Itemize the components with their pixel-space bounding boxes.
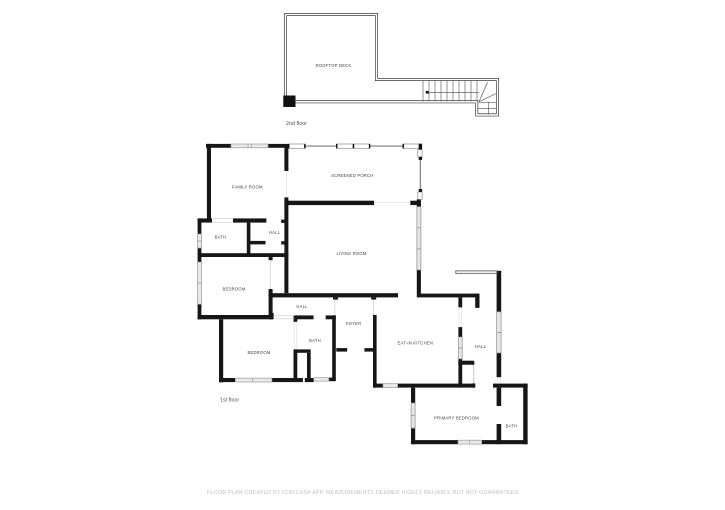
svg-text:HALL: HALL <box>475 344 487 349</box>
svg-text:BATH: BATH <box>309 338 321 343</box>
svg-text:FAMILY ROOM: FAMILY ROOM <box>232 184 263 189</box>
svg-text:SCREENED PORCH: SCREENED PORCH <box>331 173 373 178</box>
svg-text:2nd floor: 2nd floor <box>286 121 307 127</box>
svg-text:FOYER: FOYER <box>346 321 361 326</box>
svg-text:HALL: HALL <box>269 230 281 235</box>
svg-text:FLOOR PLAN CREATED BY CUBICASA: FLOOR PLAN CREATED BY CUBICASA APP. MEAS… <box>207 490 521 496</box>
svg-text:LIVING ROOM: LIVING ROOM <box>336 251 366 256</box>
svg-text:EAT-IN KITCHEN: EAT-IN KITCHEN <box>398 341 434 346</box>
svg-text:BATH: BATH <box>215 235 227 240</box>
svg-text:ROOFTOP DECK: ROOFTOP DECK <box>316 63 352 68</box>
svg-text:HALL: HALL <box>296 304 308 309</box>
svg-text:PRIMARY BEDROOM: PRIMARY BEDROOM <box>434 415 479 420</box>
svg-text:1st floor: 1st floor <box>220 398 240 404</box>
svg-text:BEDROOM: BEDROOM <box>247 350 270 355</box>
svg-text:BATH: BATH <box>506 424 518 429</box>
svg-text:BEDROOM: BEDROOM <box>222 286 245 291</box>
